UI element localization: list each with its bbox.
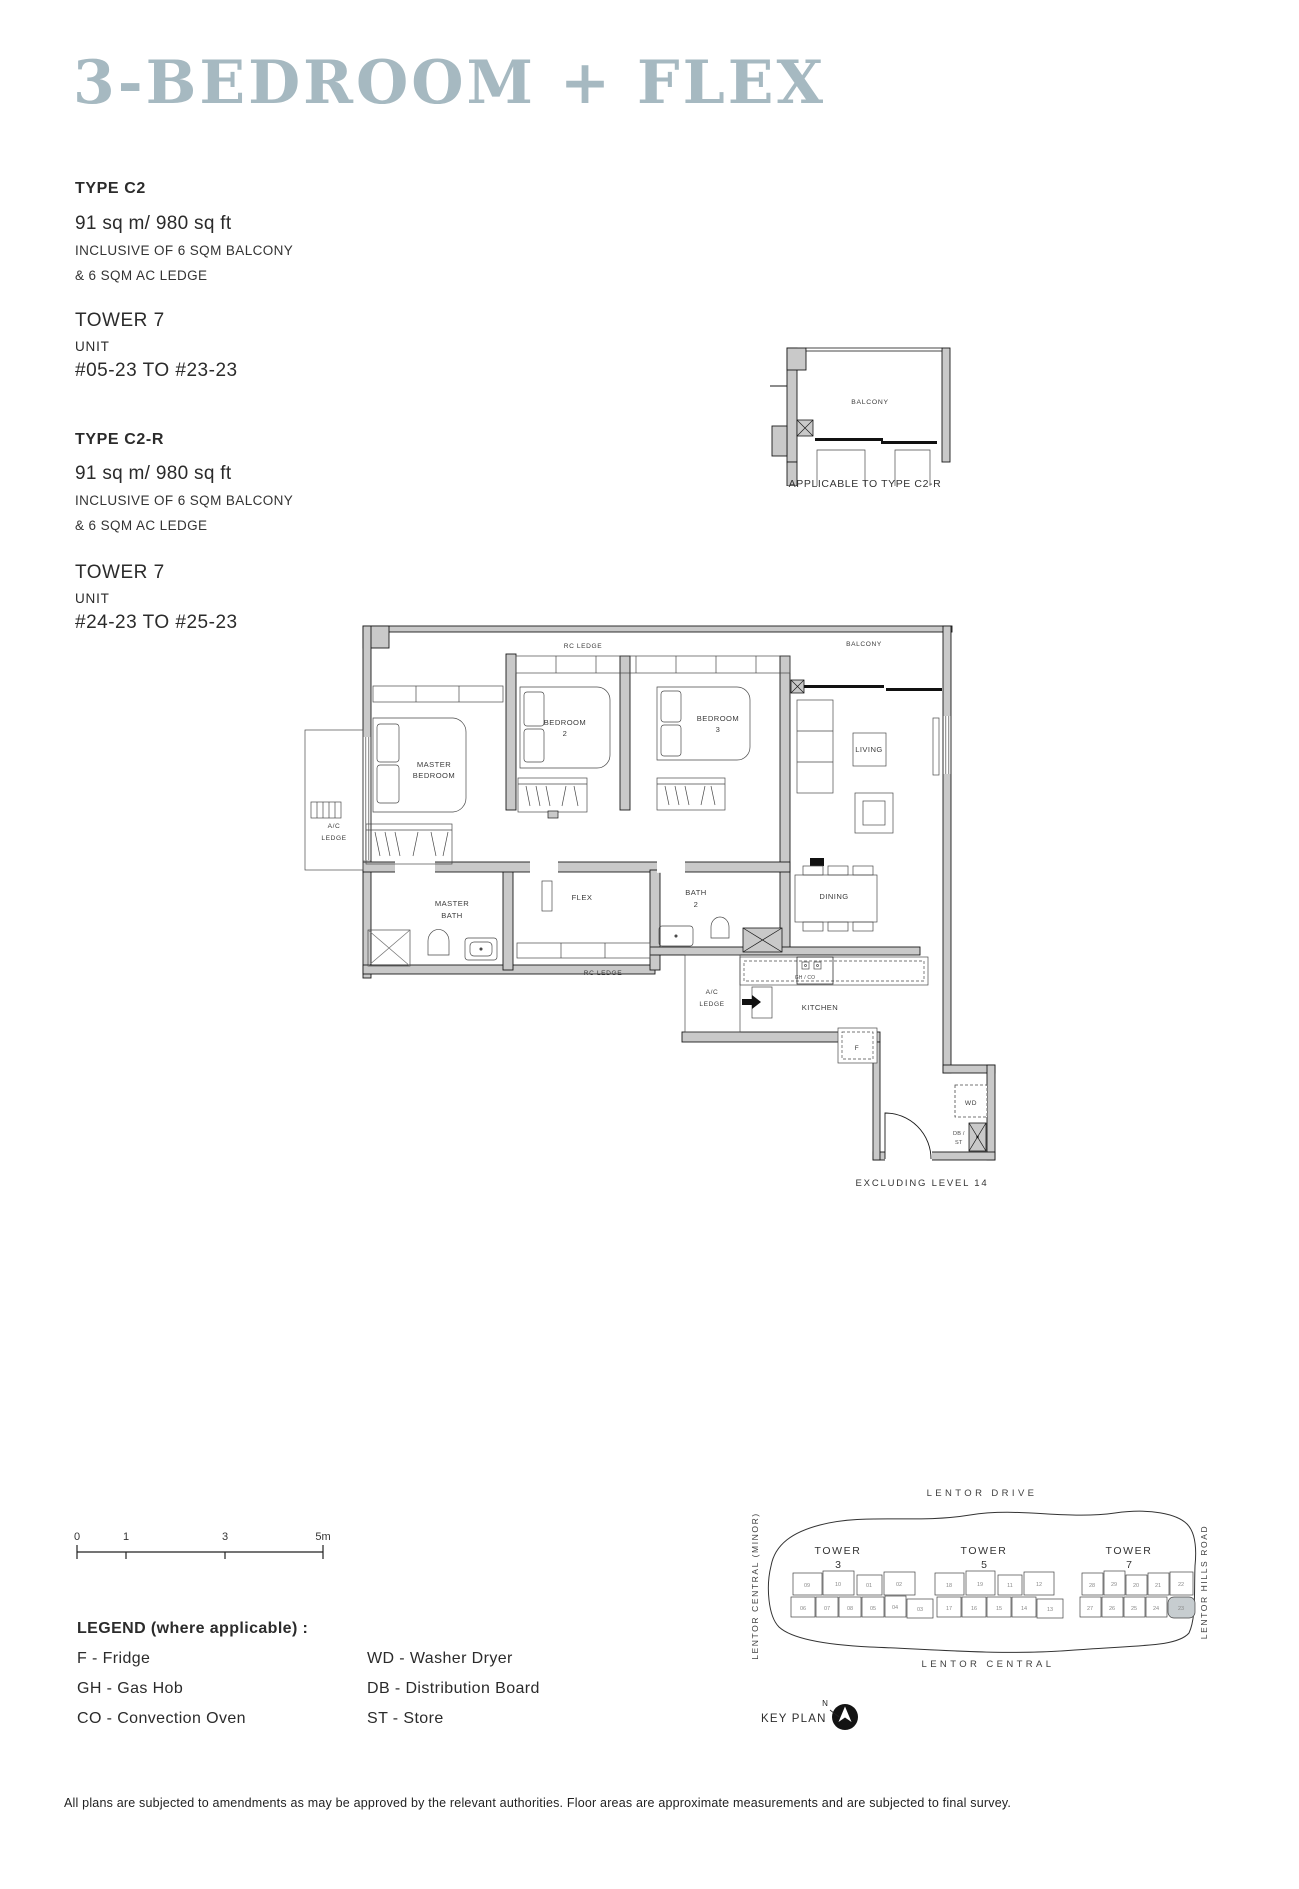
- unit-22: 22: [1178, 1582, 1184, 1588]
- plan-walls: [363, 626, 995, 1160]
- unit-17: 17: [946, 1606, 952, 1612]
- tower-3-cluster: TOWER 3 09 10 01 02 06 07 08 05 04 03: [791, 1545, 933, 1618]
- bedroom3-label-1: BEDROOM: [697, 714, 739, 723]
- rc-ledge-bottom-label: RC LEDGE: [584, 970, 623, 977]
- north-compass-icon: [830, 1704, 858, 1730]
- master-bath-fixtures: [368, 929, 497, 966]
- unit-06: 06: [800, 1606, 806, 1612]
- tower-5-label: TOWER: [961, 1545, 1008, 1557]
- variant-caption: APPLICABLE TO TYPE C2-R: [775, 478, 955, 490]
- scale-tick-1: 1: [123, 1531, 129, 1543]
- living-label: LIVING: [855, 745, 883, 754]
- key-plan-label: KEY PLAN: [761, 1713, 827, 1725]
- legend-item-oven: CO - Convection Oven: [77, 1710, 246, 1728]
- type-c2r-inclusive-1: INCLUSIVE OF 6 SQM BALCONY: [75, 493, 293, 508]
- ac-ledge-left-label-1: A/C: [328, 823, 341, 830]
- unit-19: 19: [977, 1582, 983, 1588]
- db-label: DB /: [953, 1131, 965, 1137]
- variant-sliding-door: [815, 438, 937, 444]
- scale-tick-3: 3: [222, 1531, 228, 1543]
- type-c2r-unit-range: #24-23 TO #25-23: [75, 612, 238, 634]
- tower-5-number: 5: [981, 1559, 987, 1571]
- variant-balcony-label: BALCONY: [851, 399, 888, 406]
- bedroom2-label-1: BEDROOM: [544, 718, 586, 727]
- road-lentor-central: LENTOR CENTRAL: [922, 1659, 1055, 1670]
- unit-23: 23: [1178, 1606, 1184, 1612]
- type-c2r-area: 91 sq m/ 980 sq ft: [75, 463, 231, 485]
- type-c2r-label: TYPE C2-R: [75, 431, 164, 449]
- service-shaft: [743, 928, 782, 952]
- north-label: N: [822, 1699, 828, 1708]
- balcony-label: BALCONY: [846, 641, 882, 648]
- unit-29: 29: [1111, 1582, 1117, 1588]
- master-bedroom-label-1: MASTER: [417, 760, 451, 769]
- bath2-label-2: 2: [694, 900, 699, 909]
- tower-7-cluster: TOWER 7 28 29 20 21 22 27 26 25 24 23: [1080, 1545, 1195, 1618]
- key-plan: LENTOR DRIVE LENTOR CENTRAL LENTOR CENTR…: [745, 1470, 1245, 1760]
- legend-title: LEGEND (where applicable) :: [77, 1620, 308, 1638]
- legend-item-db: DB - Distribution Board: [367, 1680, 540, 1698]
- road-lentor-hills-road: LENTOR HILLS ROAD: [1199, 1525, 1209, 1639]
- unit-28: 28: [1089, 1583, 1095, 1589]
- tower-7-number: 7: [1126, 1559, 1132, 1571]
- unit-01: 01: [866, 1583, 872, 1589]
- rc-ledge-bottom-strip: [517, 943, 650, 958]
- type-c2-unit-label: UNIT: [75, 339, 110, 354]
- tower-3-label: TOWER: [815, 1545, 862, 1557]
- type-c2r-unit-label: UNIT: [75, 591, 110, 606]
- fridge-label: F: [855, 1045, 860, 1052]
- bath2-label-1: BATH: [685, 888, 707, 897]
- unit-13: 13: [1047, 1607, 1053, 1613]
- unit-08: 08: [847, 1606, 853, 1612]
- hob-label: GH / CO: [795, 975, 816, 981]
- rc-ledge-top-label: RC LEDGE: [564, 643, 603, 650]
- scale-tick-5m: 5m: [315, 1531, 330, 1543]
- legend-item-washer-dryer: WD - Washer Dryer: [367, 1650, 540, 1668]
- unit-02: 02: [896, 1582, 902, 1588]
- balcony-ac-unit: [791, 680, 804, 693]
- tower-5-cluster: TOWER 5 18 19 11 12 17 16 15 14 13: [935, 1545, 1063, 1618]
- master-bedroom-furniture: [373, 686, 503, 812]
- variant-ac-unit: [797, 420, 813, 436]
- bedroom3-furniture: [657, 687, 750, 810]
- master-bath-label-1: MASTER: [435, 899, 469, 908]
- washer-dryer-label: WD: [965, 1100, 977, 1107]
- ac-ledge-right-label-1: A/C: [706, 989, 719, 996]
- type-c2r-tower: TOWER 7: [75, 562, 165, 584]
- unit-11: 11: [1007, 1583, 1013, 1589]
- unit-26: 26: [1109, 1606, 1115, 1612]
- flex-furniture: [542, 881, 552, 911]
- bedroom2-furniture: [518, 687, 610, 818]
- flex-door-tab: [810, 858, 824, 866]
- type-c2-tower: TOWER 7: [75, 310, 165, 332]
- legend-column-1: F - Fridge GH - Gas Hob CO - Convection …: [77, 1650, 246, 1740]
- legend-item-store: ST - Store: [367, 1710, 540, 1728]
- db-st-box: [969, 1123, 986, 1151]
- master-bath-label-2: BATH: [441, 911, 463, 920]
- variant-walls: [772, 348, 950, 486]
- bedroom3-label-2: 3: [716, 725, 721, 734]
- scale-bar: 0 1 3 5m: [70, 1528, 340, 1562]
- unit-09: 09: [804, 1583, 810, 1589]
- type-c2-inclusive-2: & 6 SQM AC LEDGE: [75, 268, 207, 283]
- legend-item-gas-hob: GH - Gas Hob: [77, 1680, 246, 1698]
- unit-20: 20: [1133, 1583, 1139, 1589]
- excluding-level-note: EXCLUDING LEVEL 14: [856, 1178, 989, 1189]
- dining-label: DINING: [819, 892, 848, 901]
- bath2-fixtures: [659, 917, 729, 946]
- type-c2-inclusive-1: INCLUSIVE OF 6 SQM BALCONY: [75, 243, 293, 258]
- legend-column-2: WD - Washer Dryer DB - Distribution Boar…: [367, 1650, 540, 1740]
- scale-tick-0: 0: [74, 1531, 80, 1543]
- road-lentor-drive: LENTOR DRIVE: [927, 1488, 1038, 1499]
- type-c2r-inclusive-2: & 6 SQM AC LEDGE: [75, 518, 207, 533]
- disclaimer-text: All plans are subjected to amendments as…: [64, 1796, 1274, 1810]
- page-title: 3-BEDROOM + FLEX: [73, 48, 826, 118]
- main-floor-plan: RC LEDGE BALCONY MASTER BEDROOM BEDROOM …: [297, 618, 1007, 1228]
- flex-label: FLEX: [572, 893, 593, 902]
- unit-07: 07: [824, 1606, 830, 1612]
- unit-14: 14: [1021, 1606, 1027, 1612]
- unit-05: 05: [870, 1606, 876, 1612]
- unit-16: 16: [971, 1606, 977, 1612]
- floorplan-brochure-page: 3-BEDROOM + FLEX TYPE C2 91 sq m/ 980 sq…: [0, 0, 1299, 1889]
- unit-24: 24: [1153, 1606, 1159, 1612]
- unit-04: 04: [892, 1605, 898, 1611]
- type-c2-area: 91 sq m/ 980 sq ft: [75, 213, 231, 235]
- tower-7-label: TOWER: [1106, 1545, 1153, 1557]
- unit-10: 10: [835, 1582, 841, 1588]
- ac-ledge-left-annex: [305, 730, 363, 870]
- ac-ledge-left-label-2: LEDGE: [321, 835, 346, 842]
- master-closet: [366, 824, 452, 864]
- master-bedroom-label-2: BEDROOM: [413, 771, 455, 780]
- balcony-sliding-door: [802, 685, 942, 691]
- type-c2-label: TYPE C2: [75, 180, 146, 198]
- rc-ledge-top-strip: [516, 656, 790, 673]
- tower-3-number: 3: [835, 1559, 841, 1571]
- kitchen-label: KITCHEN: [802, 1003, 838, 1012]
- unit-25: 25: [1131, 1606, 1137, 1612]
- kitchen-door-arrow: [742, 995, 761, 1009]
- type-c2-unit-range: #05-23 TO #23-23: [75, 360, 238, 382]
- st-label: ST: [955, 1140, 963, 1146]
- road-lentor-central-minor: LENTOR CENTRAL (MINOR): [750, 1512, 760, 1660]
- variant-balcony-plan: BALCONY: [770, 340, 960, 486]
- unit-27: 27: [1087, 1606, 1093, 1612]
- unit-15: 15: [996, 1606, 1002, 1612]
- variant-parapet: [806, 348, 942, 351]
- ac-ledge-right-label-2: LEDGE: [699, 1001, 724, 1008]
- living-furniture: [797, 700, 939, 833]
- unit-21: 21: [1155, 1583, 1161, 1589]
- unit-03: 03: [917, 1607, 923, 1613]
- legend-item-fridge: F - Fridge: [77, 1650, 246, 1668]
- unit-18: 18: [946, 1583, 952, 1589]
- unit-12: 12: [1036, 1582, 1042, 1588]
- bedroom2-label-2: 2: [563, 729, 568, 738]
